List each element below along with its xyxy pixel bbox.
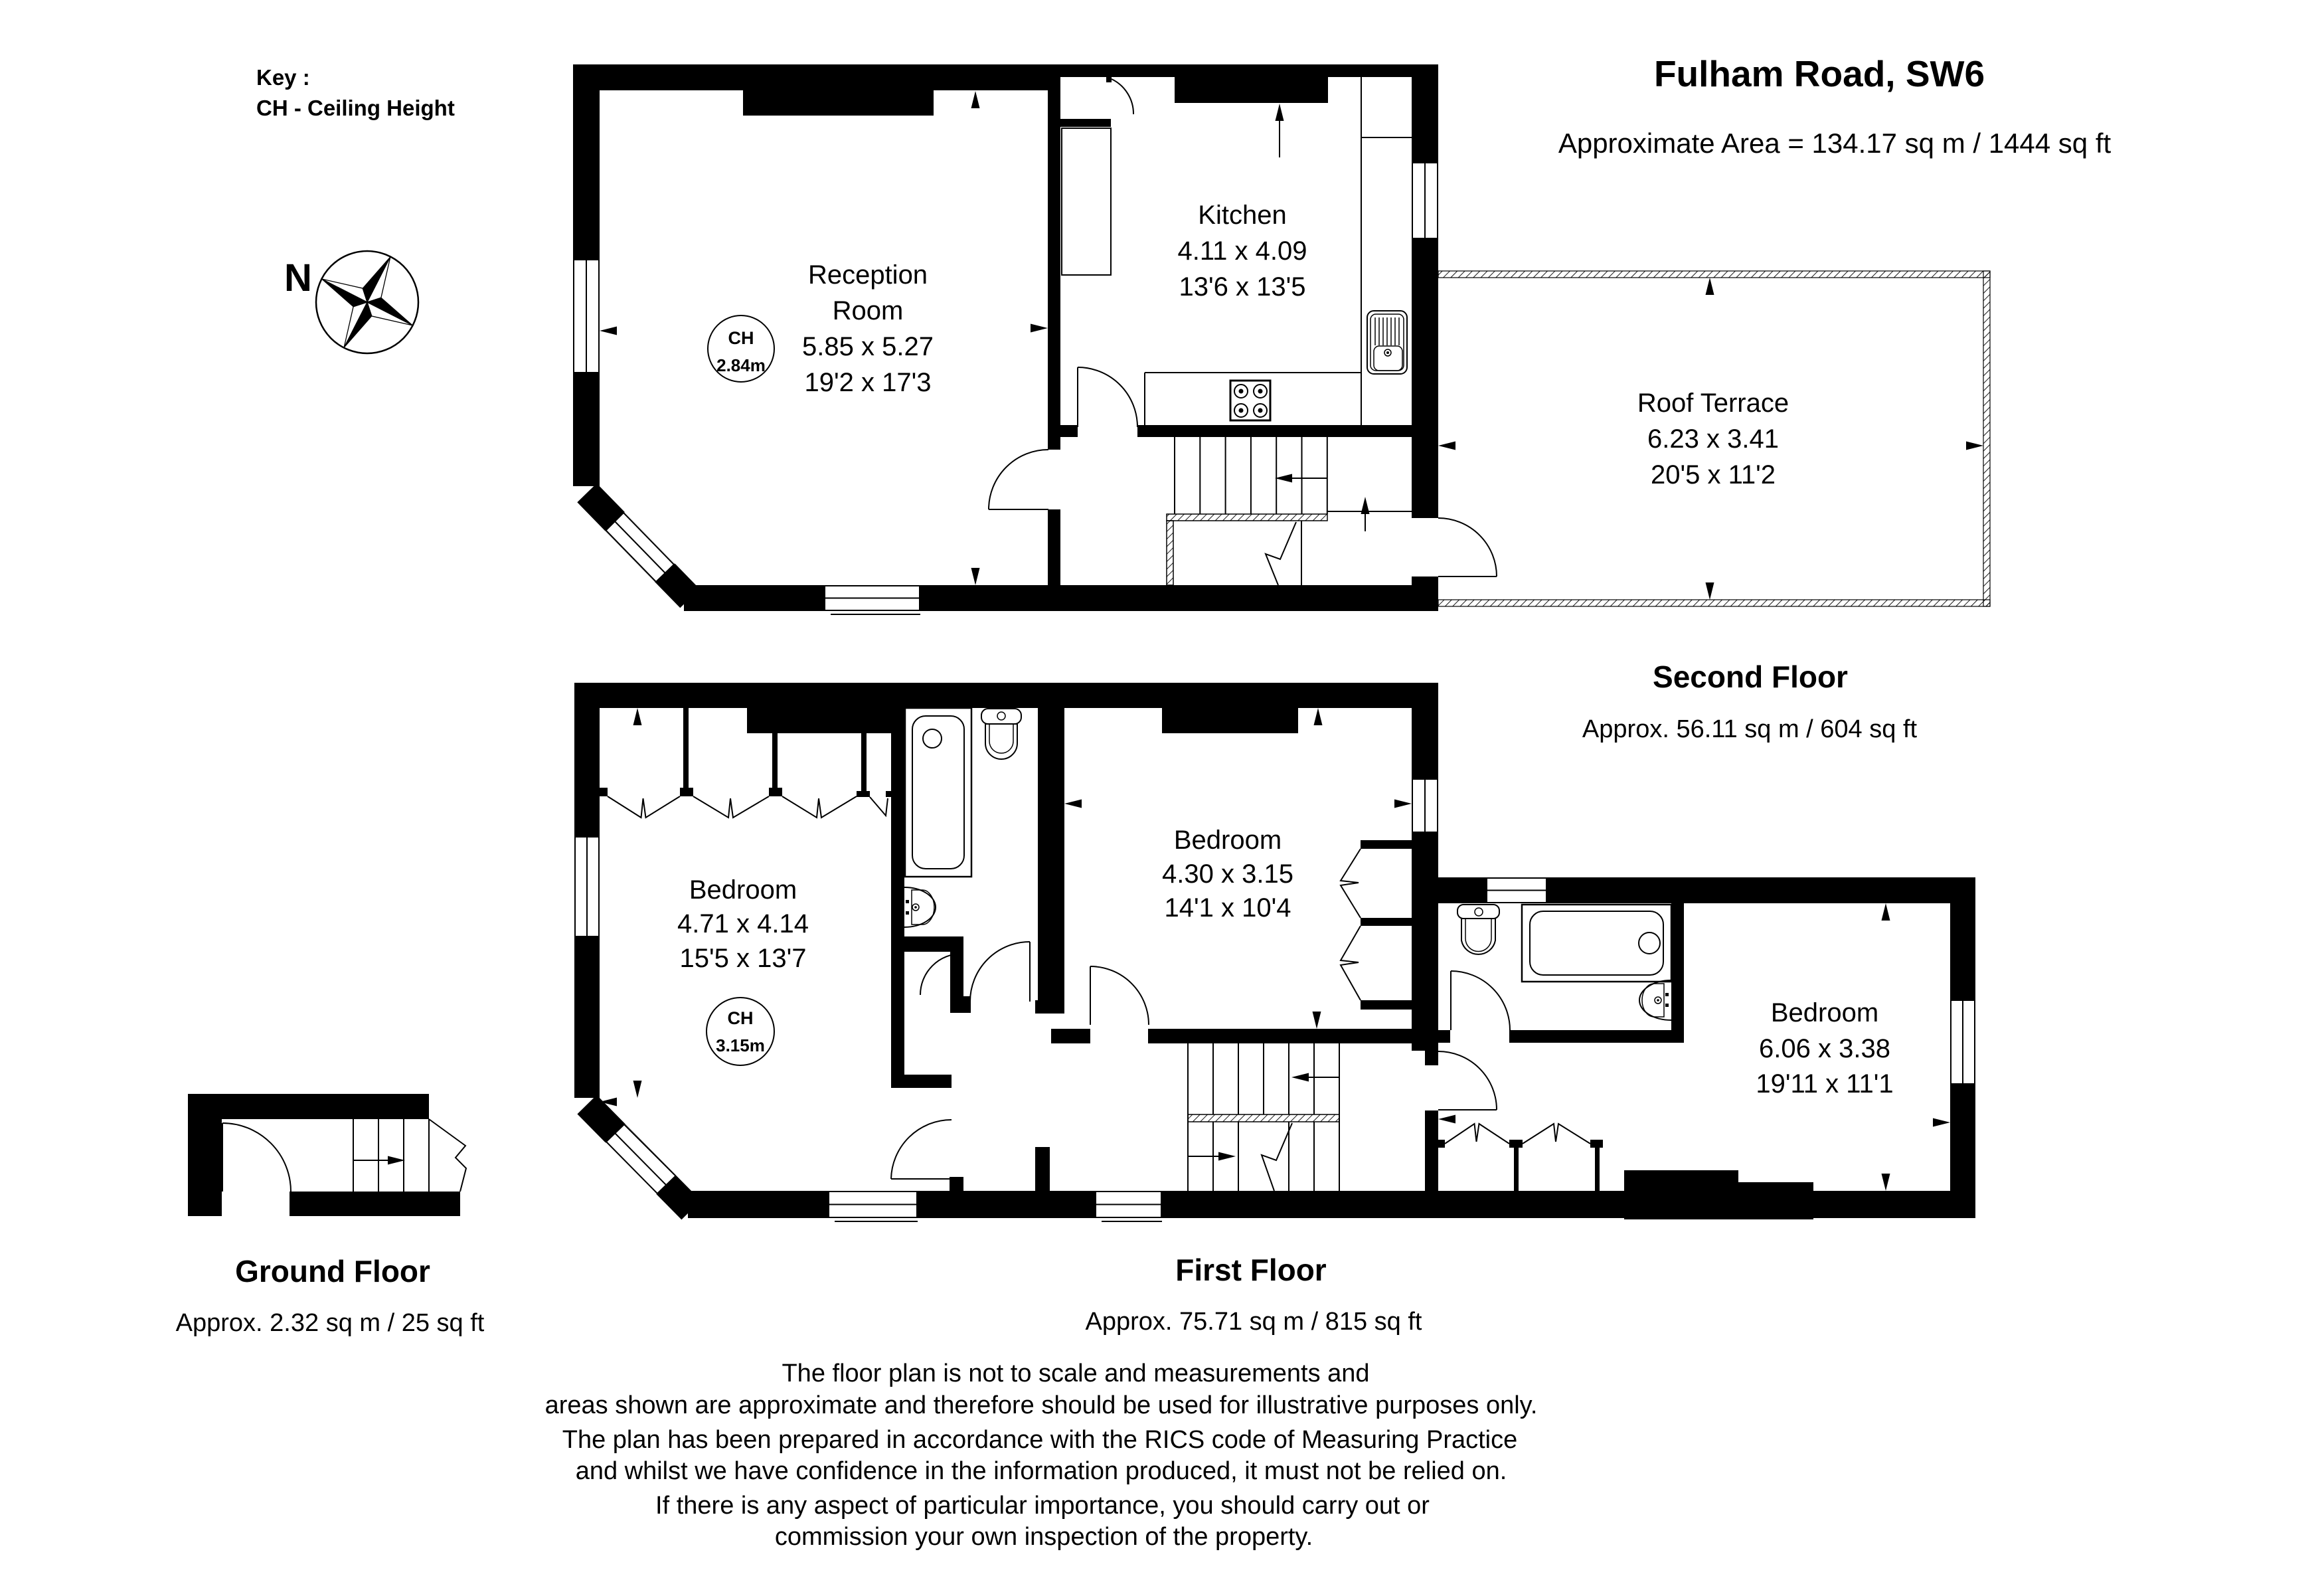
svg-text:Room: Room [833, 296, 904, 325]
svg-text:6.23 x 3.41: 6.23 x 3.41 [1647, 424, 1779, 454]
svg-text:19'2 x 17'3: 19'2 x 17'3 [805, 368, 932, 397]
svg-text:Kitchen: Kitchen [1198, 201, 1286, 230]
svg-text:N: N [284, 256, 312, 300]
svg-text:4.30 x 3.15: 4.30 x 3.15 [1162, 859, 1293, 889]
svg-text:Reception: Reception [808, 260, 928, 290]
svg-text:4.71 x 4.14: 4.71 x 4.14 [677, 909, 809, 938]
svg-text:14'1 x 10'4: 14'1 x 10'4 [1165, 893, 1291, 923]
svg-text:Bedroom: Bedroom [1174, 826, 1282, 855]
svg-text:2.84m: 2.84m [716, 355, 766, 375]
svg-text:CH - Ceiling Height: CH - Ceiling Height [256, 96, 455, 120]
svg-text:Approx. 75.71 sq m / 815 sq ft: Approx. 75.71 sq m / 815 sq ft [1086, 1308, 1422, 1336]
svg-text:13'6 x 13'5: 13'6 x 13'5 [1179, 272, 1306, 302]
svg-text:and whilst we have confidence: and whilst we have confidence in the inf… [576, 1457, 1507, 1485]
svg-text:commission your own inspection: commission your own inspection of the pr… [775, 1523, 1313, 1551]
svg-text:areas shown are approximate an: areas shown are approximate and therefor… [545, 1391, 1538, 1419]
svg-text:CH: CH [728, 328, 754, 348]
svg-text:Second Floor: Second Floor [1653, 660, 1848, 694]
svg-text:20'5 x 11'2: 20'5 x 11'2 [1651, 460, 1776, 489]
svg-text:6.06 x 3.38: 6.06 x 3.38 [1759, 1034, 1890, 1063]
svg-text:First Floor: First Floor [1175, 1253, 1327, 1287]
svg-text:Approximate Area = 134.17 sq: Approximate Area = 134.17 sq m / 1444 sq… [1558, 128, 2112, 159]
svg-text:15'5 x 13'7: 15'5 x 13'7 [680, 944, 807, 973]
svg-text:If there is any aspect of part: If there is any aspect of particular imp… [655, 1492, 1430, 1520]
svg-text:Bedroom: Bedroom [1771, 998, 1878, 1027]
svg-text:Key :: Key : [256, 65, 310, 90]
svg-text:Roof Terrace: Roof Terrace [1637, 389, 1789, 418]
svg-text:4.11 x 4.09: 4.11 x 4.09 [1178, 236, 1307, 266]
svg-text:CH: CH [728, 1008, 754, 1028]
svg-text:Fulham Road, SW6: Fulham Road, SW6 [1654, 53, 1985, 94]
svg-text:3.15m: 3.15m [716, 1035, 765, 1055]
svg-text:The floor plan is not to scale: The floor plan is not to scale and measu… [782, 1360, 1369, 1387]
svg-text:Approx. 56.11 sq m / 604 sq ft: Approx. 56.11 sq m / 604 sq ft [1582, 715, 1918, 743]
svg-text:Approx. 2.32 sq m / 25 sq ft: Approx. 2.32 sq m / 25 sq ft [176, 1309, 485, 1337]
svg-text:19'11 x 11'1: 19'11 x 11'1 [1756, 1069, 1893, 1099]
svg-text:Bedroom: Bedroom [689, 875, 797, 905]
svg-text:The plan has been prepared in: The plan has been prepared in accordance… [562, 1426, 1518, 1454]
svg-text:5.85 x 5.27: 5.85 x 5.27 [802, 332, 934, 361]
svg-text:Ground Floor: Ground Floor [235, 1254, 430, 1288]
